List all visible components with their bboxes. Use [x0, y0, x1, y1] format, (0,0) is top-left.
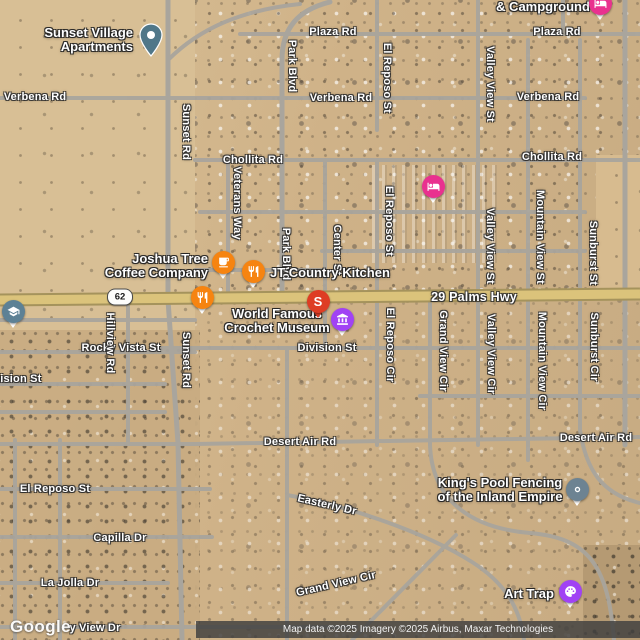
highway-62-shield: 62	[107, 289, 133, 306]
street-label: Plaza Rd	[533, 26, 580, 38]
sunset-village-apartments-label[interactable]: Sunset VillageApartments	[44, 26, 133, 54]
poi-label-line: King's Pool Fencing	[438, 476, 563, 490]
dot-icon	[571, 483, 584, 496]
street-label: Desert Air Rd	[560, 432, 633, 444]
street-label: y View Dr	[69, 622, 120, 634]
poi-label-line: & Campground	[496, 0, 590, 14]
bed-icon	[594, 0, 607, 10]
street-label: Plaza Rd	[309, 26, 356, 38]
poi-label-line: Sunset Village	[44, 26, 133, 40]
street-label: Capilla Dr	[93, 532, 146, 544]
street-label: Rocky Vista St	[81, 342, 160, 354]
street-label: Grand View Cir	[437, 310, 449, 391]
street-label: Sunburst Cir	[588, 312, 600, 381]
street-label: Sunburst St	[587, 221, 599, 286]
street-label: Chollita Rd	[223, 154, 283, 166]
poi-label-line: Apartments	[44, 40, 133, 54]
museum-icon	[336, 313, 349, 326]
poi-label-line: Crochet Museum	[224, 321, 329, 335]
poi-label-line: Coffee Company	[105, 266, 208, 280]
school-icon	[7, 305, 20, 318]
street-label: Mountain View St	[534, 190, 546, 284]
street-label: Hillview Rd	[104, 313, 116, 374]
street-label: Park Blvd	[286, 40, 298, 93]
street-label: El Reposo St	[383, 186, 395, 256]
street-label: Veterans Way	[231, 166, 243, 240]
poi-label-line: JT Country Kitchen	[270, 266, 390, 280]
street-label: Valley View St	[484, 208, 496, 284]
street-label: Verbena Rd	[4, 91, 67, 103]
street-label: Valley View St	[484, 46, 496, 122]
street-label: La Jolla Dr	[41, 577, 99, 589]
restaurant-icon	[196, 291, 209, 304]
palette-icon	[564, 585, 577, 598]
map-canvas[interactable]: Plaza RdPlaza RdVerbena RdVerbena RdVerb…	[0, 0, 640, 640]
street-label: Chollita Rd	[522, 151, 582, 163]
jt-country-kitchen-label[interactable]: JT Country Kitchen	[270, 266, 390, 280]
street-label: Valley View Cir	[485, 314, 497, 394]
campground-label[interactable]: & Campground	[496, 0, 590, 14]
map-attribution: Map data ©2025 Imagery ©2025 Airbus, Max…	[196, 621, 640, 638]
street-label: Sunset Rd	[180, 332, 192, 388]
street-label: Division St	[0, 373, 42, 385]
street-label: Mountain View Cir	[536, 312, 548, 411]
street-label: El Reposo St	[20, 483, 90, 495]
street-label: Division St	[297, 342, 356, 354]
art-trap-label[interactable]: Art Trap	[504, 587, 554, 601]
search-letter: S	[314, 294, 323, 309]
street-label: 29 Palms Hwy	[431, 290, 517, 304]
street-label: El Reposo St	[381, 43, 393, 113]
street-label: Verbena Rd	[310, 92, 373, 104]
place-icon	[138, 23, 164, 57]
street-label: Sunset Rd	[180, 104, 192, 160]
poi-label-line: Joshua Tree	[105, 252, 208, 266]
poi-label-line: of the Inland Empire	[438, 490, 563, 504]
street-label: Desert Air Rd	[264, 436, 337, 448]
google-watermark[interactable]: Google	[10, 617, 71, 637]
kings-pool-fencing-label[interactable]: King's Pool Fencingof the Inland Empire	[438, 476, 563, 504]
joshua-tree-coffee-company-label[interactable]: Joshua TreeCoffee Company	[105, 252, 208, 280]
attribution-text: Map data ©2025 Imagery ©2025 Airbus, Max…	[283, 624, 553, 635]
coffee-icon	[217, 256, 230, 269]
bed-icon	[427, 180, 440, 193]
street-label: Verbena Rd	[517, 91, 580, 103]
restaurant-icon	[247, 265, 260, 278]
poi-label-line: Art Trap	[504, 587, 554, 601]
street-label: El Reposo Cir	[384, 308, 396, 383]
